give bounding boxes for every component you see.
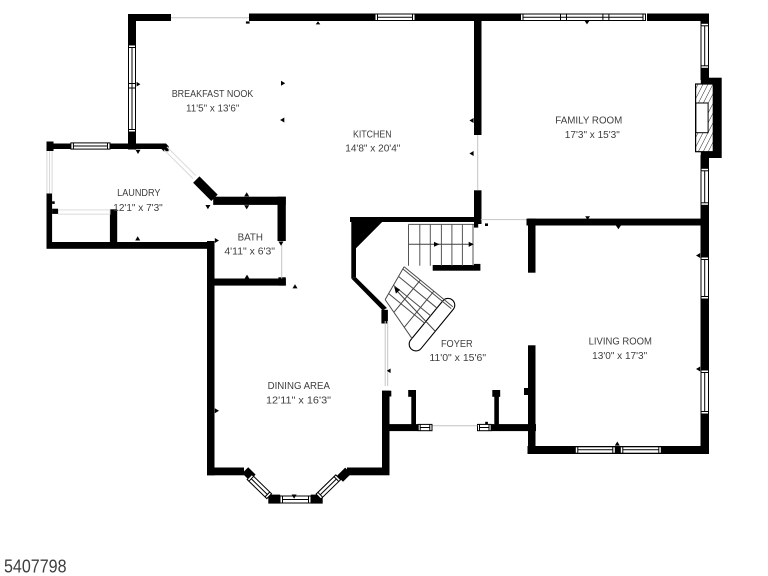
svg-text:4'11" x 6'3": 4'11" x 6'3" [224, 247, 275, 258]
svg-text:11'0" x 15'6": 11'0" x 15'6" [429, 353, 486, 364]
svg-text:11'5" x 13'6": 11'5" x 13'6" [186, 104, 240, 115]
svg-text:BREAKFAST NOOK: BREAKFAST NOOK [172, 89, 254, 100]
svg-text:FAMILY ROOM: FAMILY ROOM [555, 116, 622, 127]
svg-text:12'1" x 7'3": 12'1" x 7'3" [113, 203, 163, 214]
svg-text:5407798: 5407798 [4, 556, 67, 576]
svg-text:13'0" x 17'3": 13'0" x 17'3" [592, 351, 647, 362]
svg-text:DINING AREA: DINING AREA [268, 381, 331, 392]
svg-text:14'8" x 20'4": 14'8" x 20'4" [345, 143, 401, 154]
svg-text:12'11" x 16'3": 12'11" x 16'3" [266, 396, 331, 407]
svg-text:LIVING ROOM: LIVING ROOM [589, 337, 652, 348]
svg-text:BATH: BATH [238, 232, 263, 243]
svg-text:KITCHEN: KITCHEN [353, 130, 392, 141]
svg-text:17'3" x 15'3": 17'3" x 15'3" [565, 130, 620, 141]
svg-text:FOYER: FOYER [441, 339, 473, 350]
svg-text:LAUNDRY: LAUNDRY [117, 188, 161, 199]
